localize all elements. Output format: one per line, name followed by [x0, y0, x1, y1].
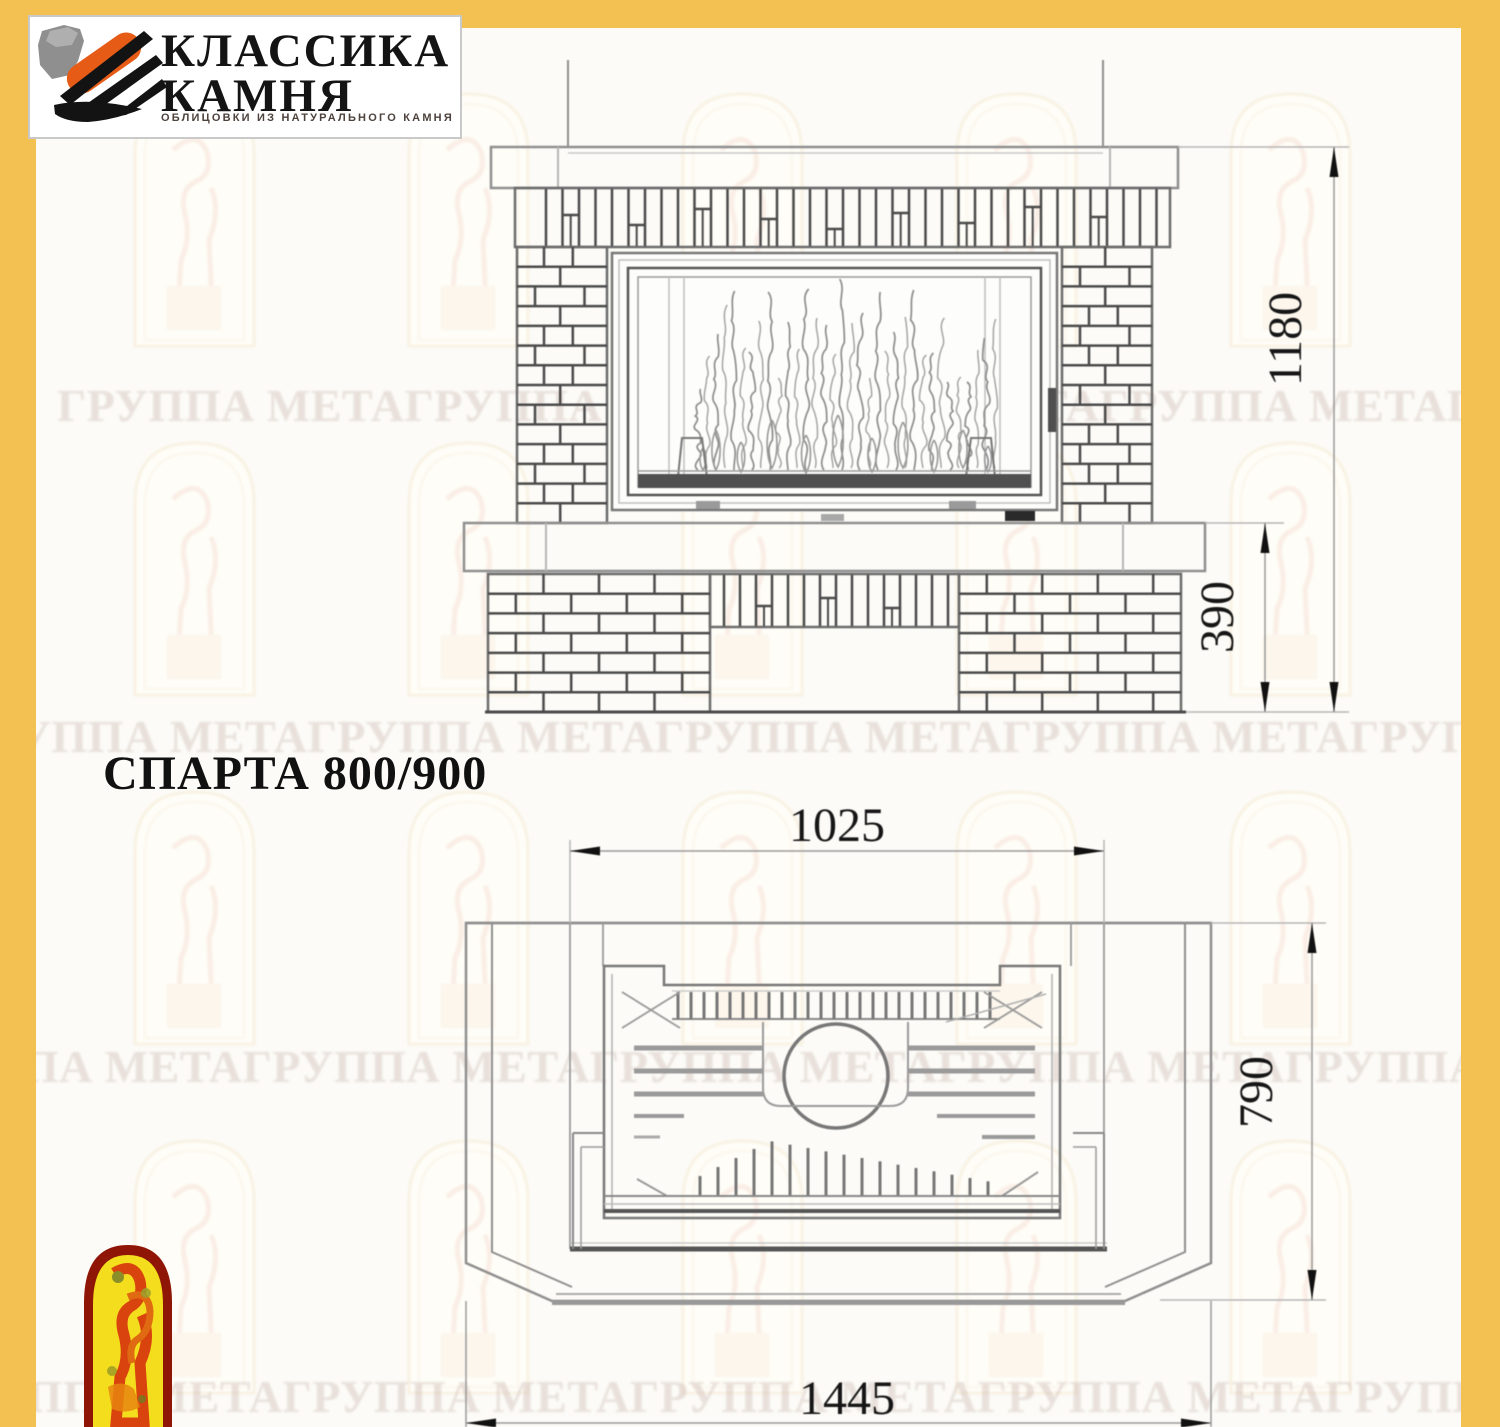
svg-text:1180: 1180: [1259, 292, 1312, 386]
svg-text:1445: 1445: [799, 1372, 895, 1425]
svg-text:390: 390: [1191, 581, 1244, 653]
svg-text:790: 790: [1230, 1056, 1283, 1128]
svg-text:1025: 1025: [789, 799, 885, 852]
